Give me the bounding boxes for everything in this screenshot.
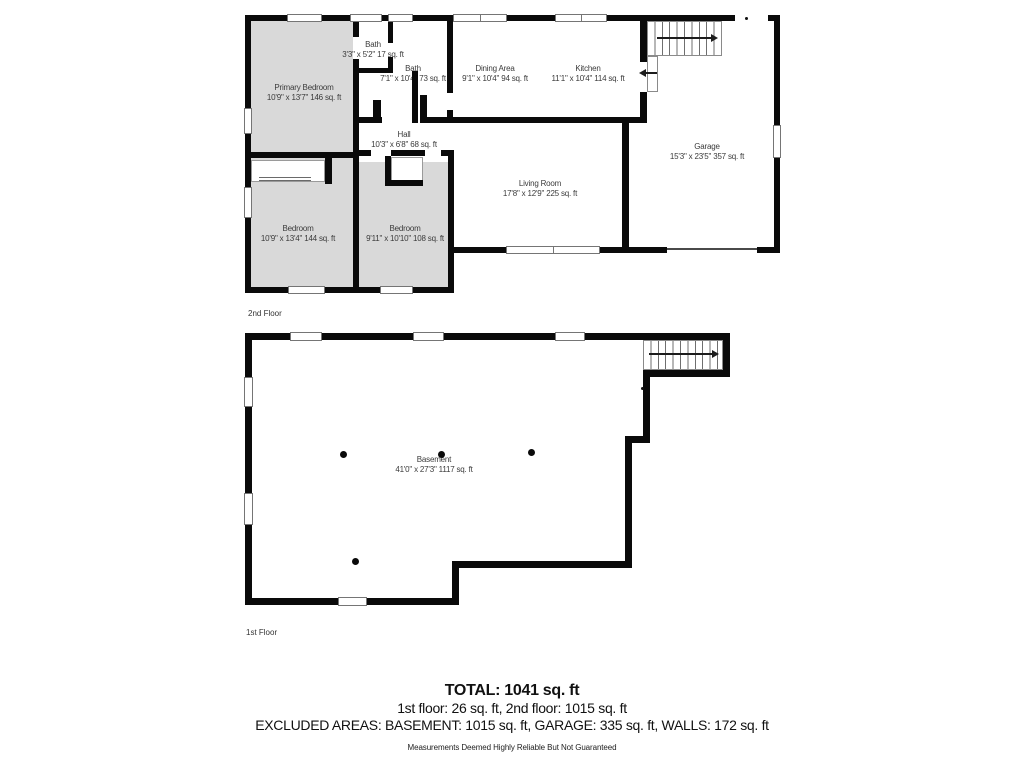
- window: [453, 14, 507, 22]
- support-column: [528, 449, 535, 456]
- window: [244, 108, 252, 134]
- room-name: Bath: [342, 40, 403, 50]
- staircase-landing: [647, 56, 658, 92]
- garage-door-line: [667, 248, 757, 250]
- room-label-dining-area: Dining Area 9'1" x 10'4" 94 sq. ft: [462, 64, 528, 84]
- room-dims: 3'3" x 5'2" 17 sq. ft: [342, 50, 403, 60]
- wall: [622, 123, 629, 253]
- wall: [448, 150, 454, 293]
- floor-label-2nd: 2nd Floor: [248, 309, 282, 318]
- window: [350, 14, 382, 22]
- support-column: [340, 451, 347, 458]
- closet: [391, 157, 423, 181]
- wall: [640, 92, 647, 123]
- wall: [420, 117, 647, 123]
- window: [555, 14, 607, 22]
- wall: [353, 59, 359, 158]
- wall: [245, 333, 252, 605]
- room-name: Basement: [395, 455, 472, 465]
- room-name: Bedroom: [366, 224, 444, 234]
- stair-direction-line: [657, 37, 712, 39]
- wall: [643, 370, 730, 377]
- window: [288, 286, 325, 294]
- stair-arrow-icon: [712, 350, 719, 358]
- room-label-garage: Garage 15'3" x 23'5" 357 sq. ft: [670, 142, 744, 162]
- window: [388, 14, 413, 22]
- room-label-kitchen: Kitchen 11'1" x 10'4" 114 sq. ft: [551, 64, 624, 84]
- window: [555, 332, 585, 341]
- room-name: Hall: [371, 130, 437, 140]
- window: [244, 493, 253, 525]
- window: [244, 187, 252, 218]
- window: [338, 597, 367, 606]
- door-marker: [641, 387, 644, 390]
- wall: [452, 561, 632, 568]
- floor-plan-1st-floor: Basement 41'0" x 27'3" 1117 sq. ft: [245, 333, 730, 605]
- window: [380, 286, 413, 294]
- wall: [600, 247, 667, 253]
- wall: [325, 158, 332, 184]
- stair-direction-line: [646, 72, 657, 74]
- wall: [245, 287, 454, 293]
- room-label-living-room: Living Room 17'8" x 12'9" 225 sq. ft: [503, 179, 577, 199]
- floor-areas-text: 1st floor: 26 sq. ft, 2nd floor: 1015 sq…: [0, 700, 1024, 717]
- window: [290, 332, 322, 341]
- room-dims: 10'9" x 13'4" 144 sq. ft: [261, 234, 335, 244]
- room-name: Bedroom: [261, 224, 335, 234]
- room-dims: 15'3" x 23'5" 357 sq. ft: [670, 152, 744, 162]
- room-dims: 9'11" x 10'10" 108 sq. ft: [366, 234, 444, 244]
- stair-arrow-icon: [639, 69, 646, 77]
- floor-label-1st: 1st Floor: [246, 628, 277, 637]
- support-column: [438, 451, 445, 458]
- room-dims: 41'0" x 27'3" 1117 sq. ft: [395, 465, 472, 475]
- floor-plan-2nd-floor: Primary Bedroom 10'9" x 13'7" 146 sq. ft…: [245, 15, 780, 293]
- wall: [391, 150, 425, 156]
- room-name: Living Room: [503, 179, 577, 189]
- wall: [373, 100, 381, 123]
- room-label-basement: Basement 41'0" x 27'3" 1117 sq. ft: [395, 455, 472, 475]
- wall: [420, 95, 427, 123]
- wall: [625, 436, 632, 568]
- disclaimer-text: Measurements Deemed Highly Reliable But …: [0, 743, 1024, 752]
- door-marker: [745, 17, 748, 20]
- room-label-bath-small: Bath 3'3" x 5'2" 17 sq. ft: [342, 40, 403, 60]
- room-label-bedroom-1: Bedroom 10'9" x 13'4" 144 sq. ft: [261, 224, 335, 244]
- wall: [385, 180, 423, 186]
- wall: [643, 377, 650, 443]
- room-dims: 17'8" x 12'9" 225 sq. ft: [503, 189, 577, 199]
- wall: [245, 15, 780, 21]
- room-dims: 10'3" x 6'8" 68 sq. ft: [371, 140, 437, 150]
- wall: [353, 156, 359, 287]
- closet-sliding-door: [259, 177, 311, 181]
- window: [413, 332, 444, 341]
- room-name: Primary Bedroom: [267, 83, 341, 93]
- wall: [757, 247, 780, 253]
- excluded-areas-text: EXCLUDED AREAS: BASEMENT: 1015 sq. ft, G…: [0, 717, 1024, 734]
- room-name: Dining Area: [462, 64, 528, 74]
- staircase: [643, 340, 723, 370]
- wall: [412, 71, 418, 123]
- wall: [353, 68, 393, 73]
- stair-arrow-icon: [711, 34, 718, 42]
- room-label-hall: Hall 10'3" x 6'8" 68 sq. ft: [371, 130, 437, 150]
- room-dims: 11'1" x 10'4" 114 sq. ft: [551, 74, 624, 84]
- wall-opening: [735, 15, 768, 21]
- wall: [441, 150, 448, 156]
- support-column: [352, 558, 359, 565]
- room-name: Garage: [670, 142, 744, 152]
- area-summary: TOTAL: 1041 sq. ft 1st floor: 26 sq. ft,…: [0, 681, 1024, 752]
- room-dims: 9'1" x 10'4" 94 sq. ft: [462, 74, 528, 84]
- window: [773, 125, 781, 158]
- total-area-text: TOTAL: 1041 sq. ft: [0, 681, 1024, 700]
- wall: [447, 15, 453, 93]
- stair-direction-line: [649, 353, 713, 355]
- room-name: Kitchen: [551, 64, 624, 74]
- wall: [245, 152, 359, 158]
- window: [506, 246, 600, 254]
- window: [244, 377, 253, 407]
- window: [287, 14, 322, 22]
- room-label-primary-bedroom: Primary Bedroom 10'9" x 13'7" 146 sq. ft: [267, 83, 341, 103]
- room-dims: 10'9" x 13'7" 146 sq. ft: [267, 93, 341, 103]
- room-label-bedroom-2: Bedroom 9'11" x 10'10" 108 sq. ft: [366, 224, 444, 244]
- wall: [640, 15, 647, 62]
